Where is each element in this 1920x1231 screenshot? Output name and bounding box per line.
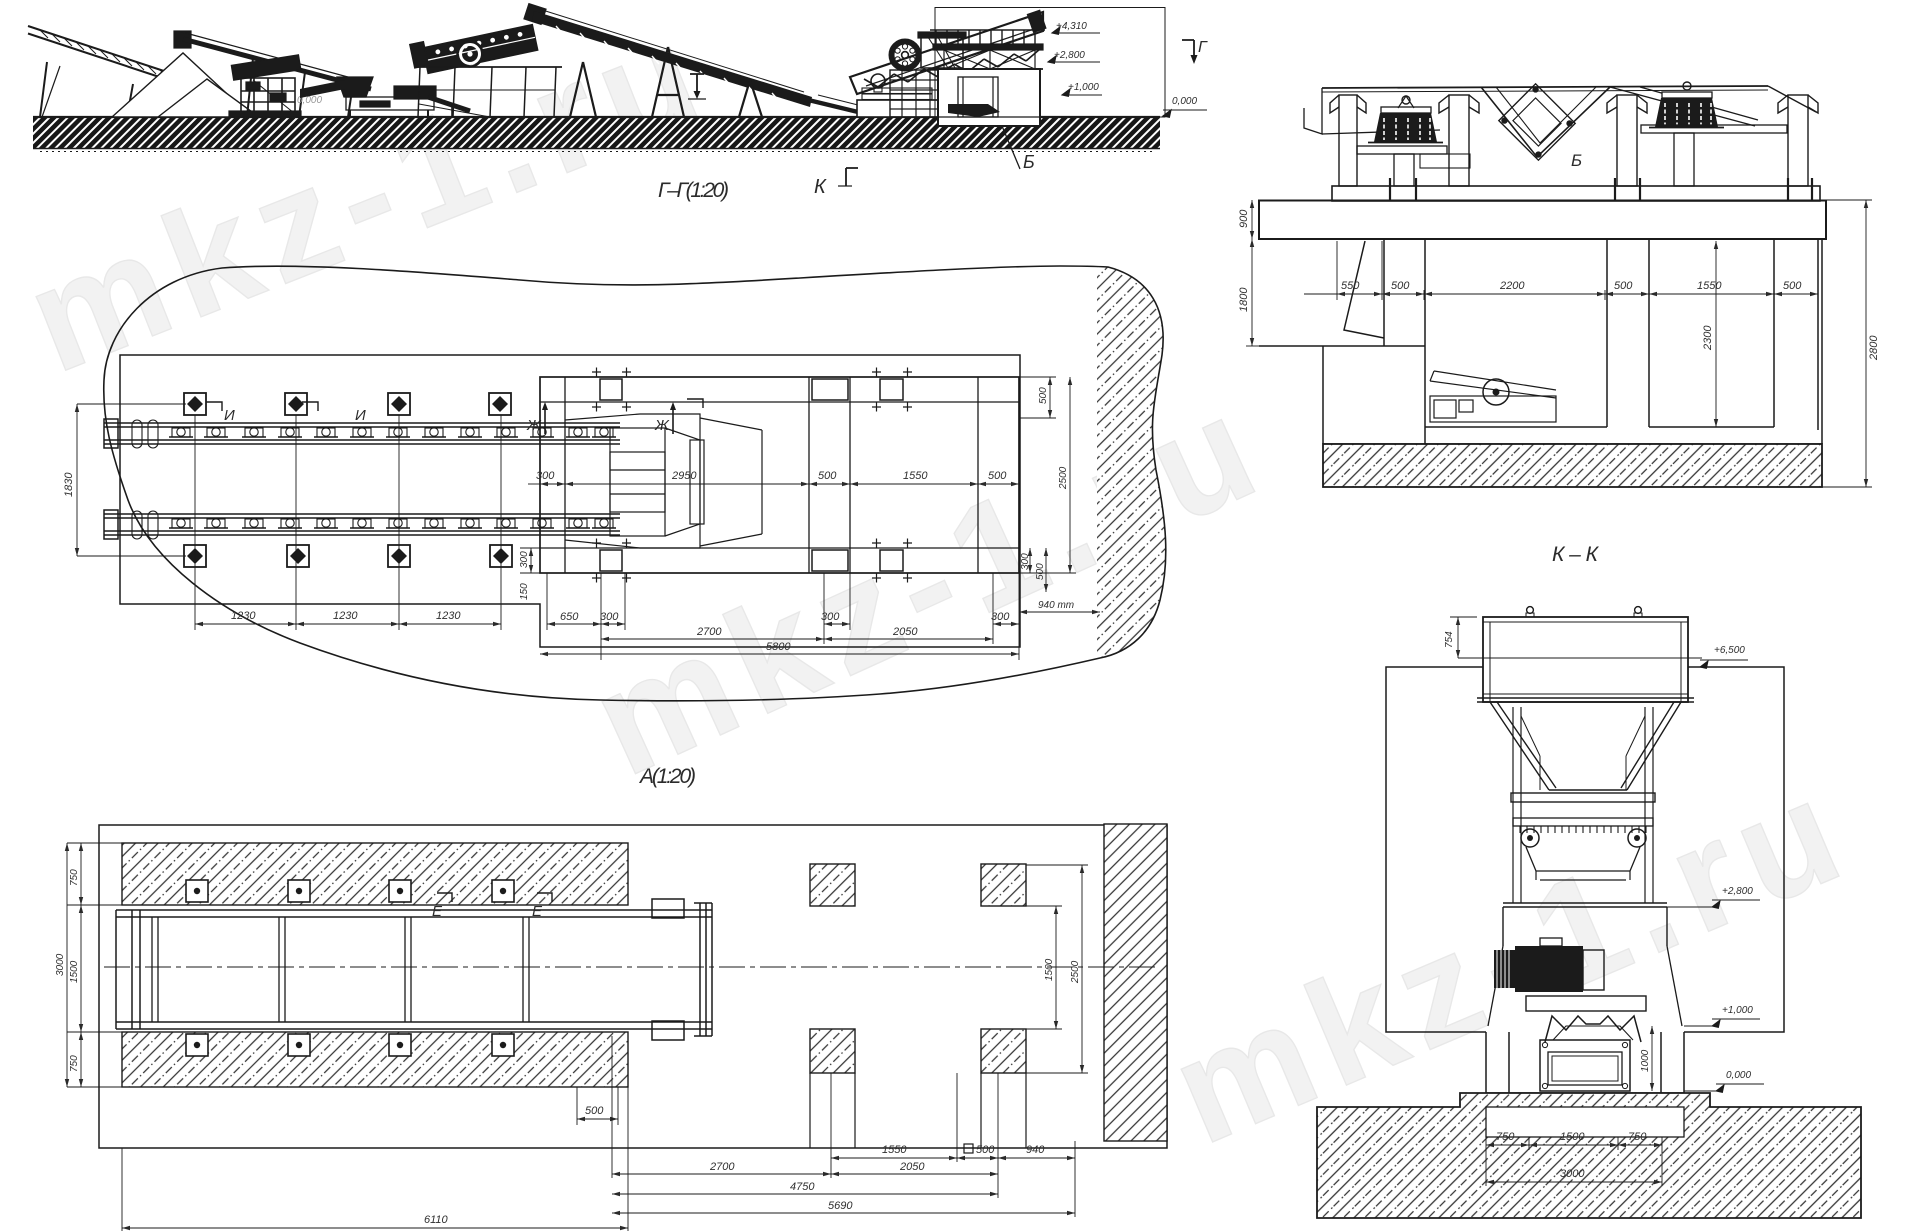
svg-text:И: И	[224, 407, 235, 424]
svg-text:Е: Е	[532, 903, 543, 920]
svg-text:2700: 2700	[696, 626, 722, 638]
svg-text:Е: Е	[432, 903, 443, 920]
svg-text:500: 500	[818, 470, 837, 482]
svg-text:300: 300	[1020, 553, 1031, 570]
svg-text:1830: 1830	[63, 472, 75, 497]
svg-text:500: 500	[976, 1144, 995, 1156]
svg-text:1550: 1550	[903, 470, 928, 482]
svg-text:1550: 1550	[882, 1144, 907, 1156]
svg-text:+1,000: +1,000	[1068, 82, 1099, 93]
svg-text:А(1:20): А(1:20)	[638, 765, 695, 788]
svg-text:550: 550	[1341, 280, 1360, 292]
svg-text:Ж: Ж	[654, 417, 670, 434]
svg-text:500: 500	[1035, 563, 1046, 580]
svg-text:750: 750	[69, 869, 80, 886]
svg-text:900: 900	[1238, 209, 1250, 228]
svg-text:Б: Б	[1571, 151, 1582, 170]
svg-text:1230: 1230	[231, 610, 256, 622]
svg-text:500: 500	[1038, 387, 1049, 404]
svg-text:300: 300	[519, 551, 530, 568]
svg-text:500: 500	[1391, 280, 1410, 292]
svg-text:1800: 1800	[1238, 287, 1250, 312]
svg-text:300: 300	[536, 470, 555, 482]
svg-text:3000: 3000	[1560, 1168, 1585, 1180]
svg-text:5800: 5800	[766, 641, 791, 653]
svg-text:0,000: 0,000	[1726, 1070, 1751, 1081]
svg-text:2050: 2050	[899, 1161, 925, 1173]
svg-text:500: 500	[585, 1105, 604, 1117]
svg-text:2500: 2500	[1058, 466, 1069, 490]
svg-text:1000: 1000	[1640, 1049, 1651, 1072]
svg-text:+2,800: +2,800	[1054, 50, 1085, 61]
svg-text:1230: 1230	[333, 610, 358, 622]
svg-text:500: 500	[1614, 280, 1633, 292]
svg-text:1550: 1550	[1697, 280, 1722, 292]
svg-text:К: К	[814, 176, 827, 198]
svg-text:2200: 2200	[1499, 280, 1525, 292]
svg-text:300: 300	[991, 611, 1010, 623]
svg-text:750: 750	[1496, 1131, 1515, 1143]
svg-text:2300: 2300	[1702, 325, 1714, 351]
svg-text:2500: 2500	[1070, 960, 1081, 984]
svg-text:+2,800: +2,800	[1722, 886, 1753, 897]
svg-text:940: 940	[1026, 1144, 1045, 1156]
svg-text:Б: Б	[1023, 152, 1035, 172]
svg-text:300: 300	[600, 611, 619, 623]
svg-text:1230: 1230	[436, 610, 461, 622]
svg-text:2800: 2800	[1868, 335, 1880, 361]
svg-text:1500: 1500	[1560, 1131, 1585, 1143]
svg-text:5690: 5690	[828, 1200, 853, 1212]
svg-text:К–К: К–К	[1552, 543, 1600, 566]
svg-text:500: 500	[1783, 280, 1802, 292]
svg-text:1500: 1500	[1044, 958, 1055, 981]
svg-text:Г–Г(1:20): Г–Г(1:20)	[658, 179, 728, 202]
svg-text:0,000: 0,000	[1172, 96, 1197, 107]
svg-text:2050: 2050	[892, 626, 918, 638]
svg-text:+4,310: +4,310	[1056, 21, 1087, 32]
svg-text:940 mm: 940 mm	[1038, 600, 1074, 611]
svg-text:750: 750	[1628, 1131, 1647, 1143]
svg-text:Г: Г	[1198, 39, 1208, 56]
svg-text:1500: 1500	[69, 960, 80, 983]
svg-text:750: 750	[69, 1055, 80, 1072]
svg-text:4750: 4750	[790, 1181, 815, 1193]
svg-text:2700: 2700	[709, 1161, 735, 1173]
svg-text:3000: 3000	[55, 953, 66, 976]
svg-text:2950: 2950	[671, 470, 697, 482]
svg-text:650: 650	[560, 611, 579, 623]
svg-text:500: 500	[988, 470, 1007, 482]
svg-text:+1,000: +1,000	[1722, 1005, 1753, 1016]
svg-text:6110: 6110	[424, 1214, 449, 1226]
svg-text:+6,500: +6,500	[1714, 645, 1745, 656]
svg-text:754: 754	[1444, 631, 1455, 648]
svg-text:300: 300	[821, 611, 840, 623]
svg-text:И: И	[355, 407, 366, 424]
svg-text:150: 150	[519, 583, 530, 600]
